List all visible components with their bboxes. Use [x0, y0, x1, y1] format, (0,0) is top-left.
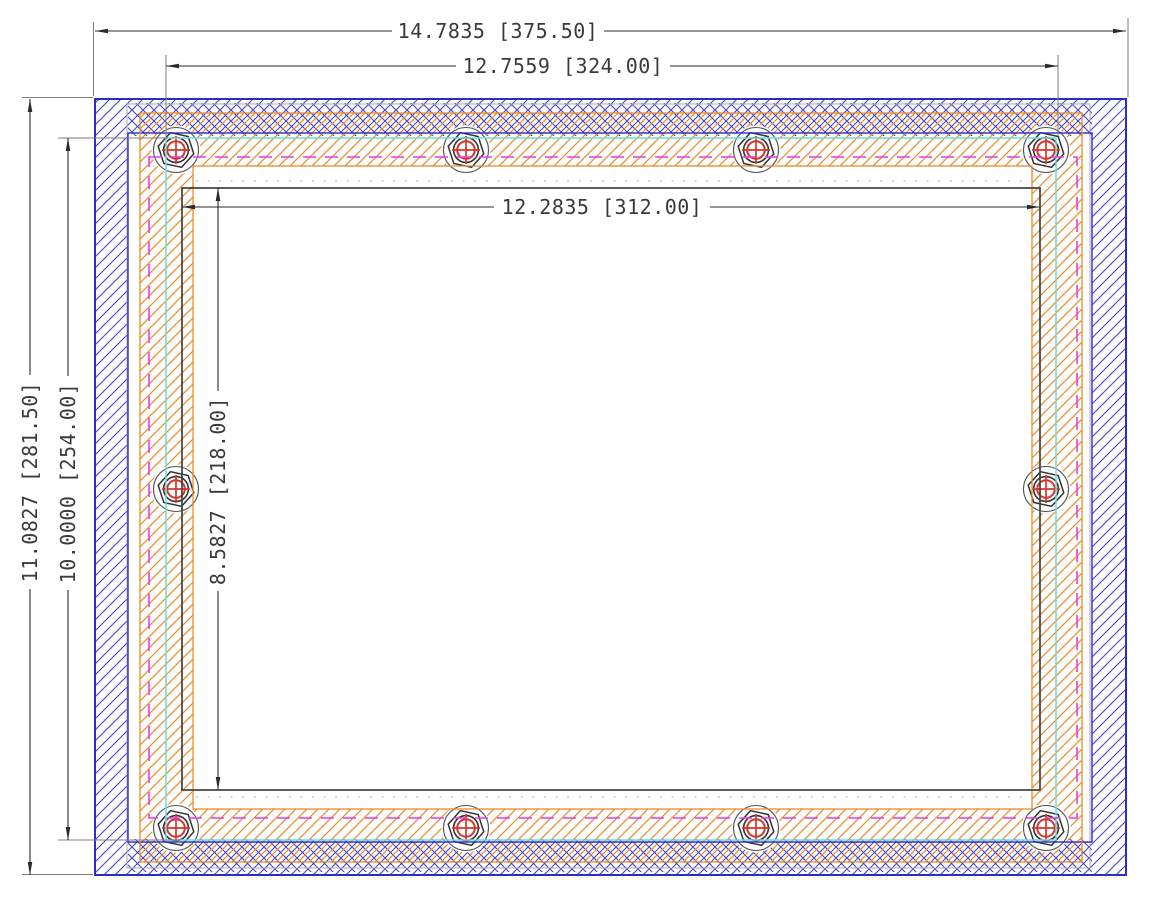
cad-drawing-canvas: 14.7835 [375.50] 12.7559 [324.00] 12.283…: [0, 0, 1162, 907]
bolt-crosshair-icon: [1022, 804, 1071, 853]
bolt-crosshair-icon: [1022, 465, 1071, 514]
cad-drawing-sheet: 14.7835 [375.50] 12.7559 [324.00] 12.283…: [0, 0, 1162, 907]
dim-label-overall-width: 14.7835 [375.50]: [398, 19, 599, 43]
bolt-crosshair-icon: [732, 804, 781, 853]
bolt-crosshair-icon: [442, 804, 491, 853]
dim-label-opening-height: 8.5827 [218.00]: [206, 397, 230, 585]
dim-label-module-height: 10.0000 [254.00]: [56, 383, 80, 584]
dim-label-module-width: 12.7559 [324.00]: [463, 54, 664, 78]
dim-label-opening-width: 12.2835 [312.00]: [502, 195, 703, 219]
dim-label-overall-height: 11.0827 [281.50]: [18, 382, 42, 583]
bolt-crosshair-icon: [152, 804, 201, 853]
